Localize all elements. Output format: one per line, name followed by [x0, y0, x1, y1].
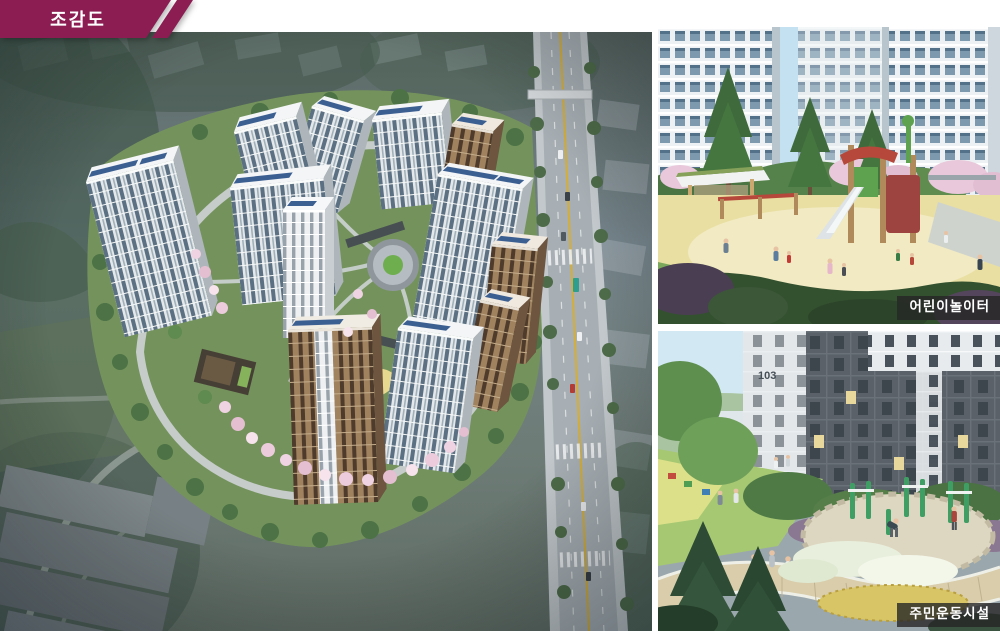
exercise-photo: 103 [658, 331, 1000, 631]
exercise-scene: 103 [658, 331, 1000, 631]
aerial-scene [0, 32, 652, 631]
building-number-text: 103 [758, 370, 776, 382]
playground-photo: 어린이놀이터 [658, 27, 1000, 324]
pergola [928, 175, 996, 180]
title-badge: 조감도 [0, 0, 200, 42]
badge-label: 조감도 [50, 10, 106, 30]
page: { "badge": { "label": "조감도" }, "photos":… [0, 0, 1000, 631]
photo-label-exercise: 주민운동시설 [897, 603, 1000, 627]
vignette-overlay [0, 32, 652, 631]
photo-label-playground: 어린이놀이터 [897, 296, 1000, 320]
aerial-rendering-photo [0, 32, 652, 631]
playground-scene [658, 27, 1000, 324]
